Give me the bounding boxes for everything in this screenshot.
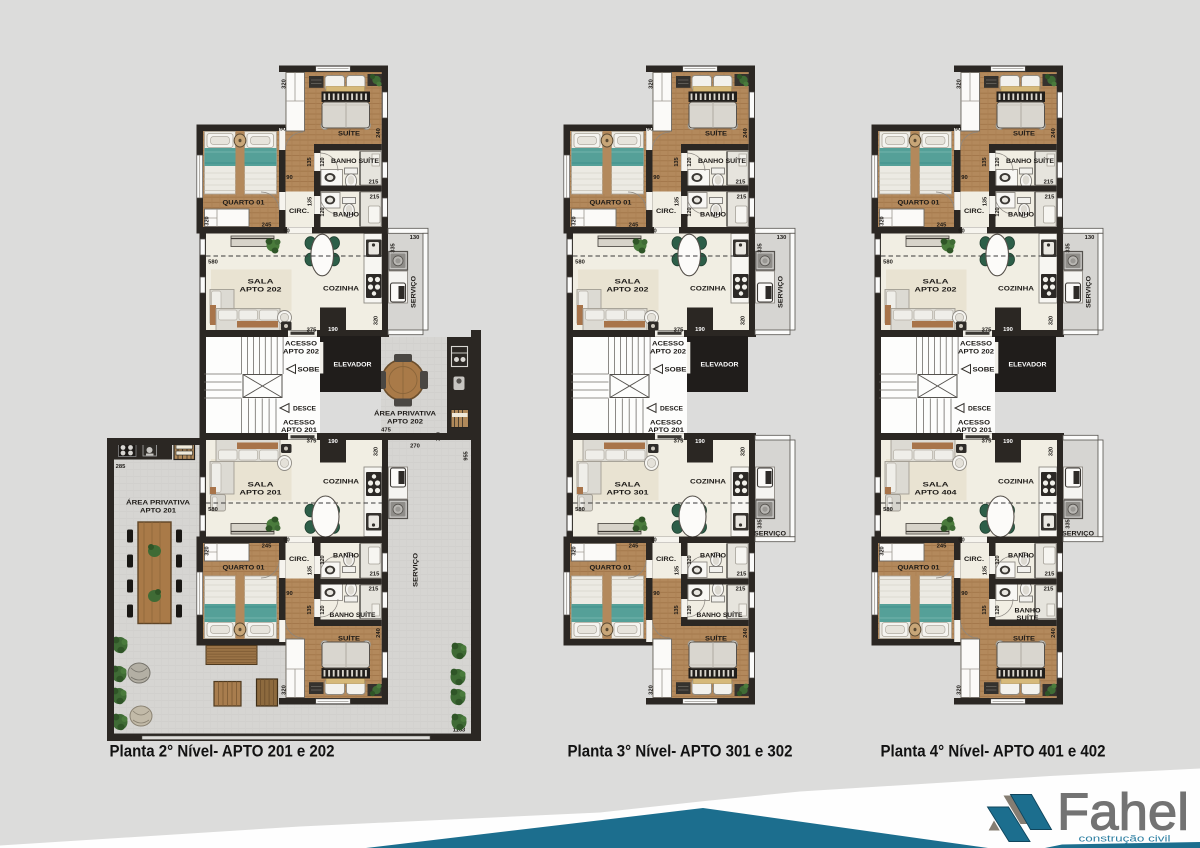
svg-text:215: 215 — [737, 195, 747, 201]
svg-text:90: 90 — [283, 538, 289, 544]
svg-text:COZINHA: COZINHA — [690, 286, 727, 293]
svg-text:CIRC.: CIRC. — [964, 209, 984, 215]
svg-text:SOBE: SOBE — [298, 367, 320, 374]
svg-text:Planta 3° Nível- APTO 301 e 30: Planta 3° Nível- APTO 301 e 302 — [568, 742, 793, 761]
svg-text:SOBE: SOBE — [973, 367, 995, 374]
svg-text:COZINHA: COZINHA — [998, 286, 1035, 293]
svg-text:COZINHA: COZINHA — [998, 479, 1035, 486]
svg-text:APTO 201: APTO 201 — [240, 490, 283, 497]
svg-text:580: 580 — [575, 260, 585, 266]
svg-text:190: 190 — [695, 327, 705, 333]
svg-text:320: 320 — [956, 685, 962, 695]
svg-text:ACESSO: ACESSO — [652, 341, 684, 348]
svg-text:320: 320 — [648, 685, 654, 695]
svg-text:285: 285 — [116, 464, 126, 470]
svg-text:130: 130 — [1085, 235, 1095, 241]
svg-text:375: 375 — [674, 439, 684, 445]
svg-text:ELEVADOR: ELEVADOR — [1009, 362, 1048, 369]
svg-text:90: 90 — [958, 538, 964, 544]
svg-text:SUÍTE: SUÍTE — [705, 634, 727, 642]
svg-text:90: 90 — [961, 175, 967, 181]
svg-text:90: 90 — [283, 228, 289, 234]
svg-text:240: 240 — [1051, 628, 1057, 638]
svg-text:135: 135 — [674, 157, 680, 166]
svg-text:245: 245 — [937, 223, 947, 229]
svg-text:215: 215 — [736, 587, 746, 593]
svg-text:320: 320 — [281, 685, 287, 695]
svg-text:APTO 301: APTO 301 — [607, 490, 650, 497]
svg-text:120: 120 — [995, 157, 1001, 166]
svg-text:BANHO: BANHO — [333, 213, 359, 219]
svg-text:APTO 201: APTO 201 — [281, 427, 318, 434]
svg-text:SUÍTE: SUÍTE — [1013, 129, 1035, 137]
svg-text:320: 320 — [648, 79, 654, 89]
svg-text:215: 215 — [737, 572, 747, 578]
svg-text:BANHO: BANHO — [333, 554, 359, 560]
svg-text:120: 120 — [995, 207, 1001, 216]
svg-text:SERVIÇO: SERVIÇO — [754, 532, 786, 538]
svg-text:BANHO: BANHO — [1008, 213, 1034, 219]
svg-text:BANHO: BANHO — [1008, 554, 1034, 560]
svg-text:580: 580 — [208, 507, 218, 513]
svg-text:BANHO: BANHO — [700, 213, 726, 219]
svg-text:270: 270 — [410, 444, 420, 450]
svg-text:320: 320 — [374, 316, 380, 325]
svg-text:APTO 202: APTO 202 — [387, 419, 424, 426]
svg-text:BANHO SUÍTE: BANHO SUÍTE — [1006, 157, 1054, 165]
svg-text:ACESSO: ACESSO — [650, 420, 682, 427]
svg-text:240: 240 — [743, 128, 749, 138]
svg-text:215: 215 — [370, 195, 380, 201]
svg-text:120: 120 — [995, 605, 1001, 614]
svg-text:QUARTO 01: QUARTO 01 — [590, 200, 633, 207]
svg-text:BANHO SUÍTE: BANHO SUÍTE — [698, 157, 746, 165]
svg-text:SERVIÇO: SERVIÇO — [412, 276, 418, 308]
svg-text:SALA: SALA — [615, 482, 642, 489]
svg-text:APTO 202: APTO 202 — [240, 287, 283, 294]
svg-text:BANHO SUÍTE: BANHO SUÍTE — [330, 611, 376, 619]
svg-text:135: 135 — [982, 605, 988, 614]
svg-text:240: 240 — [743, 628, 749, 638]
svg-text:ELEVADOR: ELEVADOR — [334, 362, 373, 369]
svg-text:90: 90 — [653, 591, 659, 597]
svg-text:240: 240 — [1051, 128, 1057, 138]
svg-text:320: 320 — [956, 79, 962, 89]
svg-text:APTO 202: APTO 202 — [650, 349, 687, 356]
svg-text:QUARTO 01: QUARTO 01 — [898, 200, 941, 207]
svg-text:ÁREA PRIVATIVA: ÁREA PRIVATIVA — [126, 498, 190, 507]
svg-text:COZINHA: COZINHA — [323, 479, 360, 486]
svg-text:QUARTO 01: QUARTO 01 — [898, 565, 941, 572]
svg-text:SALA: SALA — [248, 482, 275, 489]
svg-text:ACESSO: ACESSO — [958, 420, 990, 427]
svg-text:ACESSO: ACESSO — [283, 420, 315, 427]
svg-text:320: 320 — [281, 79, 287, 89]
svg-text:APTO 202: APTO 202 — [607, 287, 650, 294]
svg-text:190: 190 — [695, 439, 705, 445]
svg-text:245: 245 — [262, 544, 272, 550]
svg-text:SERVIÇO: SERVIÇO — [413, 553, 420, 587]
svg-text:120: 120 — [687, 605, 693, 614]
svg-text:construção civil: construção civil — [1079, 834, 1171, 844]
svg-text:SUÍTE: SUÍTE — [1013, 634, 1035, 642]
svg-text:375: 375 — [674, 327, 684, 333]
svg-text:135: 135 — [307, 157, 313, 166]
svg-text:APTO 202: APTO 202 — [958, 349, 995, 356]
svg-text:375: 375 — [307, 327, 317, 333]
svg-text:BANHO: BANHO — [1015, 609, 1041, 615]
svg-text:90: 90 — [286, 175, 292, 181]
svg-text:SALA: SALA — [248, 279, 275, 286]
svg-text:375: 375 — [307, 439, 317, 445]
svg-text:90: 90 — [647, 127, 653, 133]
svg-text:SUÍTE: SUÍTE — [338, 634, 360, 642]
svg-text:120: 120 — [320, 157, 326, 166]
svg-text:SOBE: SOBE — [665, 367, 687, 374]
svg-text:90: 90 — [958, 228, 964, 234]
svg-text:120: 120 — [320, 207, 326, 216]
svg-text:SERVIÇO: SERVIÇO — [779, 276, 785, 308]
svg-text:90: 90 — [286, 591, 292, 597]
svg-text:135: 135 — [674, 197, 680, 206]
svg-text:245: 245 — [262, 223, 272, 229]
svg-text:215: 215 — [736, 180, 746, 186]
svg-text:DESCE: DESCE — [293, 406, 316, 413]
svg-text:320: 320 — [572, 216, 578, 225]
svg-text:135: 135 — [307, 566, 313, 575]
svg-text:375: 375 — [982, 327, 992, 333]
svg-text:580: 580 — [883, 507, 893, 513]
svg-text:320: 320 — [880, 546, 886, 555]
svg-text:335: 335 — [391, 243, 397, 252]
svg-text:COZINHA: COZINHA — [690, 479, 727, 486]
svg-text:375: 375 — [982, 439, 992, 445]
svg-text:320: 320 — [374, 447, 380, 456]
svg-text:190: 190 — [1003, 327, 1013, 333]
svg-text:215: 215 — [369, 180, 379, 186]
svg-text:SUÍTE: SUÍTE — [338, 129, 360, 137]
svg-text:245: 245 — [937, 544, 947, 550]
svg-text:135: 135 — [307, 197, 313, 206]
svg-text:135: 135 — [674, 566, 680, 575]
svg-text:335: 335 — [758, 243, 764, 252]
svg-text:120: 120 — [995, 555, 1001, 564]
svg-text:SALA: SALA — [923, 482, 950, 489]
svg-text:APTO 202: APTO 202 — [283, 349, 320, 356]
svg-text:215: 215 — [370, 572, 380, 578]
svg-text:135: 135 — [674, 605, 680, 614]
svg-text:215: 215 — [1044, 587, 1054, 593]
svg-text:130: 130 — [410, 235, 420, 241]
svg-text:SERVIÇO: SERVIÇO — [1062, 532, 1094, 538]
svg-text:335: 335 — [1066, 243, 1072, 252]
svg-text:120: 120 — [320, 555, 326, 564]
svg-text:320: 320 — [741, 447, 747, 456]
svg-text:Planta 2° Nível- APTO 201 e 20: Planta 2° Nível- APTO 201 e 202 — [110, 742, 335, 761]
svg-text:215: 215 — [1045, 195, 1055, 201]
svg-text:190: 190 — [328, 439, 338, 445]
svg-text:135: 135 — [307, 605, 313, 614]
svg-text:QUARTO 01: QUARTO 01 — [223, 565, 266, 572]
svg-text:245: 245 — [629, 223, 639, 229]
svg-text:240: 240 — [376, 128, 382, 138]
svg-text:190: 190 — [328, 327, 338, 333]
svg-text:DESCE: DESCE — [660, 406, 683, 413]
svg-text:ÁREA PRIVATIVA: ÁREA PRIVATIVA — [374, 411, 437, 418]
svg-text:135: 135 — [982, 197, 988, 206]
svg-text:135: 135 — [982, 157, 988, 166]
svg-text:QUARTO 01: QUARTO 01 — [223, 200, 266, 207]
svg-text:ACESSO: ACESSO — [285, 341, 317, 348]
svg-text:90: 90 — [955, 127, 961, 133]
svg-text:APTO 201: APTO 201 — [956, 427, 993, 434]
svg-text:90: 90 — [650, 228, 656, 234]
svg-text:BANHO SUÍTE: BANHO SUÍTE — [697, 611, 743, 619]
svg-text:580: 580 — [208, 260, 218, 266]
svg-text:CIRC.: CIRC. — [964, 557, 984, 563]
svg-text:APTO 202: APTO 202 — [915, 287, 958, 294]
svg-text:ELEVADOR: ELEVADOR — [701, 362, 740, 369]
svg-text:475: 475 — [381, 428, 391, 434]
svg-text:COZINHA: COZINHA — [323, 286, 360, 293]
svg-text:245: 245 — [629, 544, 639, 550]
svg-text:215: 215 — [1045, 572, 1055, 578]
svg-text:SERVIÇO: SERVIÇO — [1087, 276, 1093, 308]
svg-text:CIRC.: CIRC. — [289, 557, 309, 563]
svg-text:CIRC.: CIRC. — [656, 557, 676, 563]
svg-text:335: 335 — [1066, 519, 1072, 528]
svg-text:90: 90 — [280, 127, 286, 133]
svg-text:APTO 201: APTO 201 — [648, 427, 685, 434]
svg-text:320: 320 — [205, 216, 211, 225]
svg-text:BANHO: BANHO — [700, 554, 726, 560]
svg-text:190: 190 — [1003, 439, 1013, 445]
svg-text:135: 135 — [982, 566, 988, 575]
svg-text:CIRC.: CIRC. — [289, 209, 309, 215]
svg-text:SUÍTE: SUÍTE — [705, 129, 727, 137]
svg-text:120: 120 — [687, 157, 693, 166]
svg-text:APTO 201: APTO 201 — [140, 508, 177, 515]
svg-text:120: 120 — [687, 555, 693, 564]
svg-text:130: 130 — [777, 235, 787, 241]
svg-text:335: 335 — [758, 519, 764, 528]
svg-text:120: 120 — [687, 207, 693, 216]
svg-text:90: 90 — [961, 591, 967, 597]
svg-text:BANHO SUÍTE: BANHO SUÍTE — [331, 157, 379, 165]
svg-text:320: 320 — [880, 216, 886, 225]
svg-text:QUARTO 01: QUARTO 01 — [590, 565, 633, 572]
svg-text:APTO 404: APTO 404 — [915, 490, 958, 497]
svg-text:215: 215 — [1044, 180, 1054, 186]
svg-text:580: 580 — [883, 260, 893, 266]
svg-text:SALA: SALA — [615, 279, 642, 286]
svg-text:CIRC.: CIRC. — [656, 209, 676, 215]
svg-text:320: 320 — [572, 546, 578, 555]
svg-text:580: 580 — [575, 507, 585, 513]
svg-text:320: 320 — [741, 316, 747, 325]
svg-text:240: 240 — [376, 628, 382, 638]
svg-text:320: 320 — [205, 546, 211, 555]
svg-text:320: 320 — [1049, 447, 1055, 456]
svg-text:120: 120 — [320, 605, 326, 614]
svg-text:90: 90 — [650, 538, 656, 544]
svg-text:320: 320 — [1049, 316, 1055, 325]
svg-text:90: 90 — [653, 175, 659, 181]
svg-text:Planta 4° Nível- APTO 401 e 40: Planta 4° Nível- APTO 401 e 402 — [881, 742, 1106, 761]
svg-text:SALA: SALA — [923, 279, 950, 286]
svg-text:955: 955 — [464, 451, 470, 460]
svg-text:DESCE: DESCE — [968, 406, 991, 413]
svg-text:ACESSO: ACESSO — [960, 341, 992, 348]
svg-text:215: 215 — [369, 587, 379, 593]
svg-text:SUÍTE: SUÍTE — [1017, 614, 1039, 622]
